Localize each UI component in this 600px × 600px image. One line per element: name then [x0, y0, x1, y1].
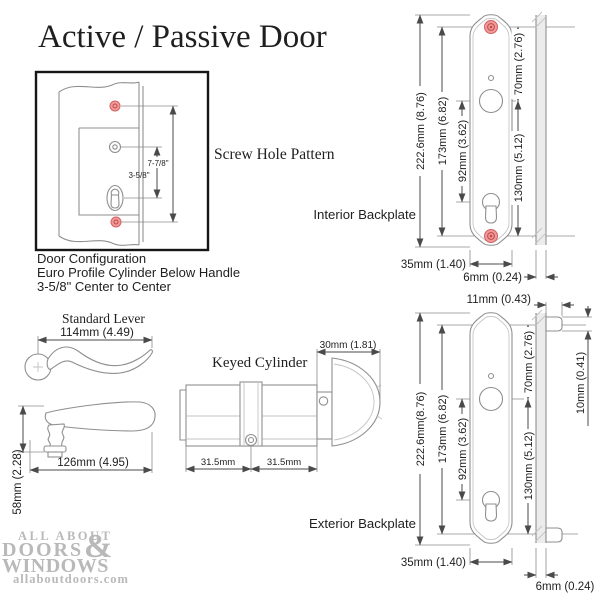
- lever-blade-top-view: [47, 347, 152, 373]
- standard-lever-diagram: Standard Lever 114mm (4.49) 58mm (2.28) …: [12, 311, 155, 515]
- int-total-height-dim: 222.6mm (8.76): [415, 92, 427, 170]
- interior-bottom-screw-icon: [485, 230, 498, 243]
- thumbturn: [332, 358, 380, 446]
- config-line-1: Door Configuration: [37, 251, 146, 266]
- exterior-bottom-tab: [546, 528, 562, 542]
- cylinder-screw: [246, 435, 257, 446]
- exterior-backplate-diagram: 222.6mm(8.76) 173mm (6.82) 92mm (3.62) 7…: [309, 294, 595, 593]
- cylinder-right-half-dim: 31.5mm: [267, 457, 301, 468]
- cylinder-left-half-dim: 31.5mm: [201, 457, 235, 468]
- exterior-top-tab: [546, 317, 562, 331]
- ext-thickness-dim: 6mm (0.24): [536, 581, 595, 593]
- int-top-to-handle-dim: 70mm (2.76): [513, 33, 525, 95]
- lever-neck-side-view: [48, 424, 65, 446]
- ext-top-to-handle-dim: 70mm (2.76): [523, 331, 535, 393]
- interior-backplate-diagram: 222.6mm (8.76) 173mm (6.82) 92mm (3.62) …: [313, 12, 575, 284]
- lever-collar: [44, 446, 66, 452]
- screw-hole-top-icon: [110, 101, 120, 111]
- door-configuration-note: Door Configuration Euro Profile Cylinder…: [37, 251, 240, 294]
- ext-width-dim: 35mm (1.40): [401, 557, 466, 569]
- lever-top-length-dim: 114mm (4.49): [60, 325, 134, 339]
- config-line-2: Euro Profile Cylinder Below Handle: [37, 265, 240, 280]
- handle-screw-hole-icon: [110, 142, 121, 153]
- dim-handle-to-cylinder: 3-5/8": [128, 171, 149, 180]
- int-screw-spacing-dim: 173mm (6.82): [437, 97, 449, 165]
- interior-backplate-label: Interior Backplate: [313, 207, 416, 222]
- standard-lever-label: Standard Lever: [62, 311, 145, 326]
- lever-height-dim: 58mm (2.28): [12, 449, 24, 514]
- ext-tab-height-dim: 10mm (0.41): [575, 352, 587, 414]
- ext-tab-depth-dim: 11mm (0.43): [467, 294, 532, 306]
- keyed-cylinder-label: Keyed Cylinder: [212, 355, 307, 371]
- ext-handle-cyl-dim: 92mm (3.62): [457, 418, 469, 480]
- int-handle-to-bottom-dim: 130mm (5.12): [513, 134, 525, 202]
- config-line-3: 3-5/8" Center to Center: [37, 279, 172, 294]
- screw-hole-pattern-label: Screw Hole Pattern: [214, 146, 335, 163]
- int-handle-cyl-dim: 92mm (3.62): [457, 120, 469, 182]
- int-thickness-dim: 6mm (0.24): [463, 272, 522, 284]
- screw-hole-pattern-diagram: 7-7/8" 3-5/8": [36, 72, 208, 250]
- ext-screw-spacing-dim: 173mm (6.82): [437, 395, 449, 463]
- int-width-dim: 35mm (1.40): [401, 259, 466, 271]
- exterior-backplate-label: Exterior Backplate: [309, 516, 416, 531]
- ext-total-height-dim: 222.6mm(8.76): [415, 392, 427, 467]
- logo-website: allaboutdoors.com: [13, 572, 129, 586]
- lever-side-length-dim: 126mm (4.95): [57, 457, 129, 469]
- diagram-page: Active / Passive Door 7-7/8" 3-5/8" Scre…: [0, 0, 600, 600]
- ext-handle-to-bottom-dim: 130mm (5.12): [523, 432, 535, 500]
- interior-top-screw-icon: [485, 21, 498, 34]
- page-title: Active / Passive Door: [38, 19, 327, 55]
- screw-hole-bottom-icon: [111, 217, 121, 227]
- pattern-box-border: [36, 72, 208, 250]
- keyed-cylinder-diagram: Keyed Cylinder 30mm (1.81) 31.5mm 31.5mm: [180, 340, 382, 472]
- door-hardware-diagram: Active / Passive Door 7-7/8" 3-5/8" Scre…: [0, 0, 600, 600]
- dim-screw-to-screw: 7-7/8": [147, 159, 168, 168]
- thumbturn-width-dim: 30mm (1.81): [320, 340, 377, 351]
- logo: ALL ABOUT & DOORS WINDOWS allaboutdoors.…: [2, 528, 129, 586]
